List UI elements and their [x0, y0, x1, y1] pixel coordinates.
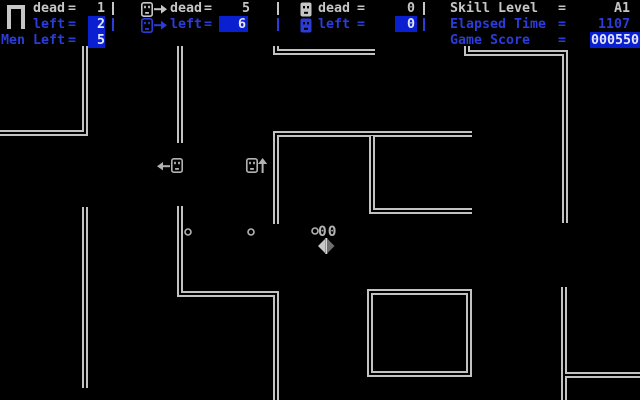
diamond-item [318, 238, 335, 254]
creature-face [172, 159, 182, 172]
arrow-left-icon [157, 162, 170, 170]
arrow-up-icon [258, 158, 267, 173]
pellet-dot [248, 229, 254, 235]
maze-walls [0, 46, 640, 400]
creature-face [247, 159, 257, 172]
maze-field[interactable]: 00 [0, 0, 640, 400]
game-screen[interactable]: dead = 1 left = 2 Men Left = 5 dead = 5 [0, 0, 640, 400]
score-popup: 00 [318, 224, 337, 240]
maze-walls-gap [0, 46, 640, 400]
pellet-dot [185, 229, 191, 235]
